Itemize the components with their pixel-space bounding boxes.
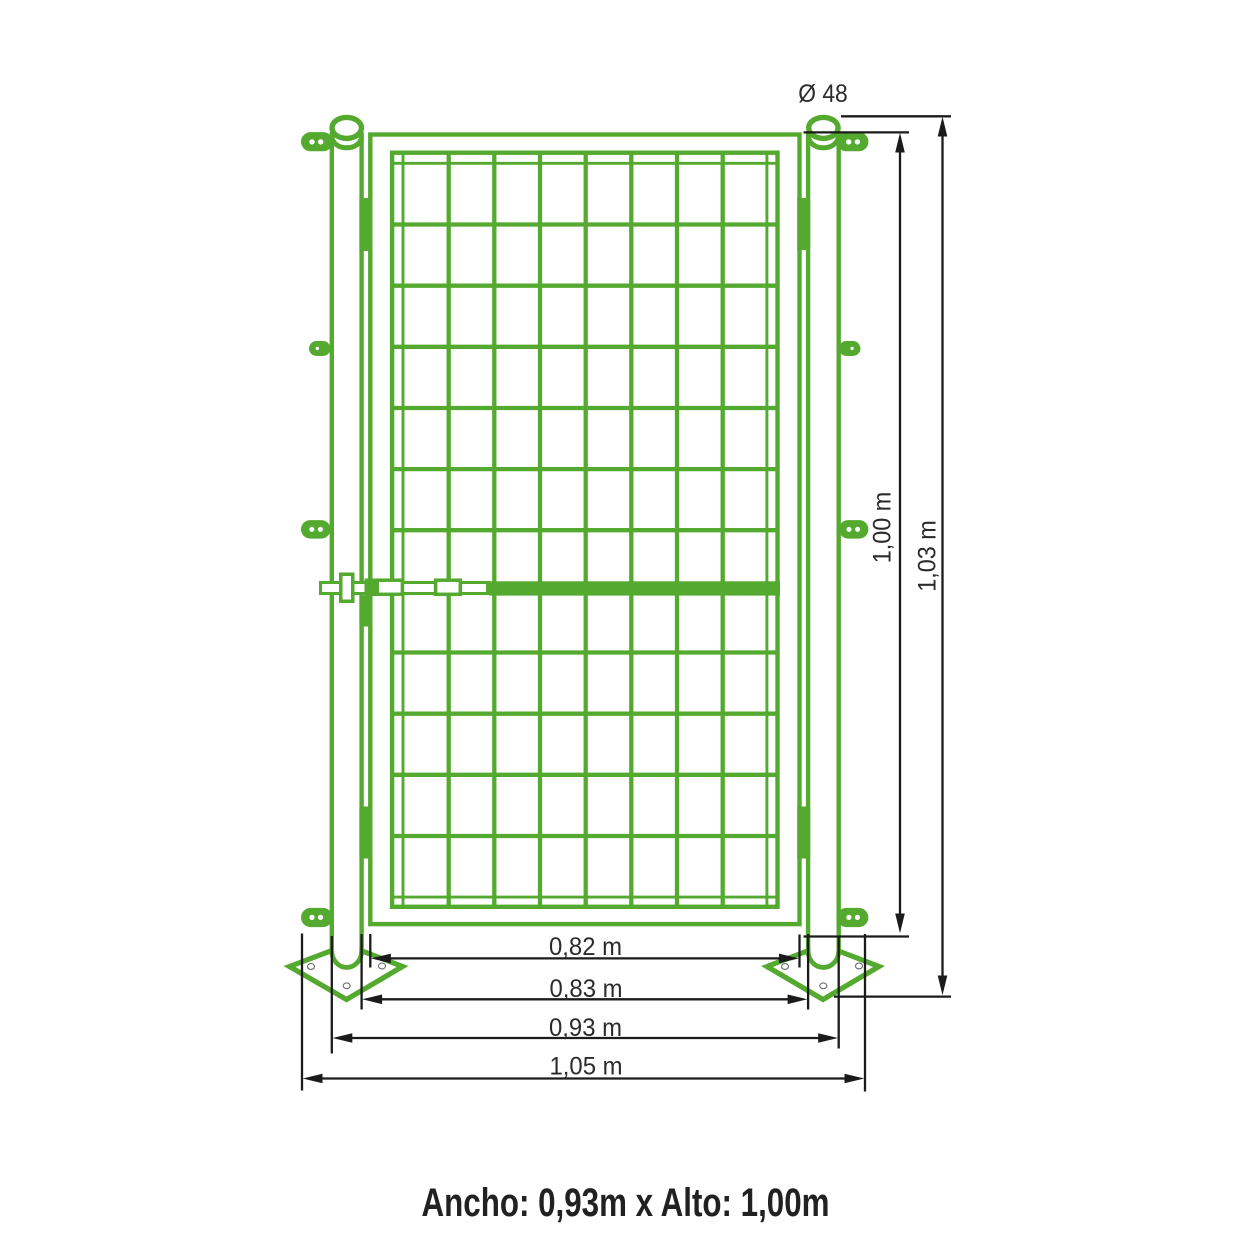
- svg-text:Ø 48: Ø 48: [798, 80, 848, 108]
- svg-text:0,82 m: 0,82 m: [549, 933, 622, 961]
- svg-text:0,93 m: 0,93 m: [549, 1014, 622, 1042]
- svg-text:0,83 m: 0,83 m: [550, 975, 623, 1003]
- svg-text:1,00 m: 1,00 m: [869, 492, 897, 564]
- svg-text:Ancho: 0,93m x Alto: 1,00m: Ancho: 0,93m x Alto: 1,00m: [422, 1181, 830, 1225]
- svg-text:1,05 m: 1,05 m: [550, 1052, 623, 1080]
- svg-text:1,03 m: 1,03 m: [914, 520, 942, 592]
